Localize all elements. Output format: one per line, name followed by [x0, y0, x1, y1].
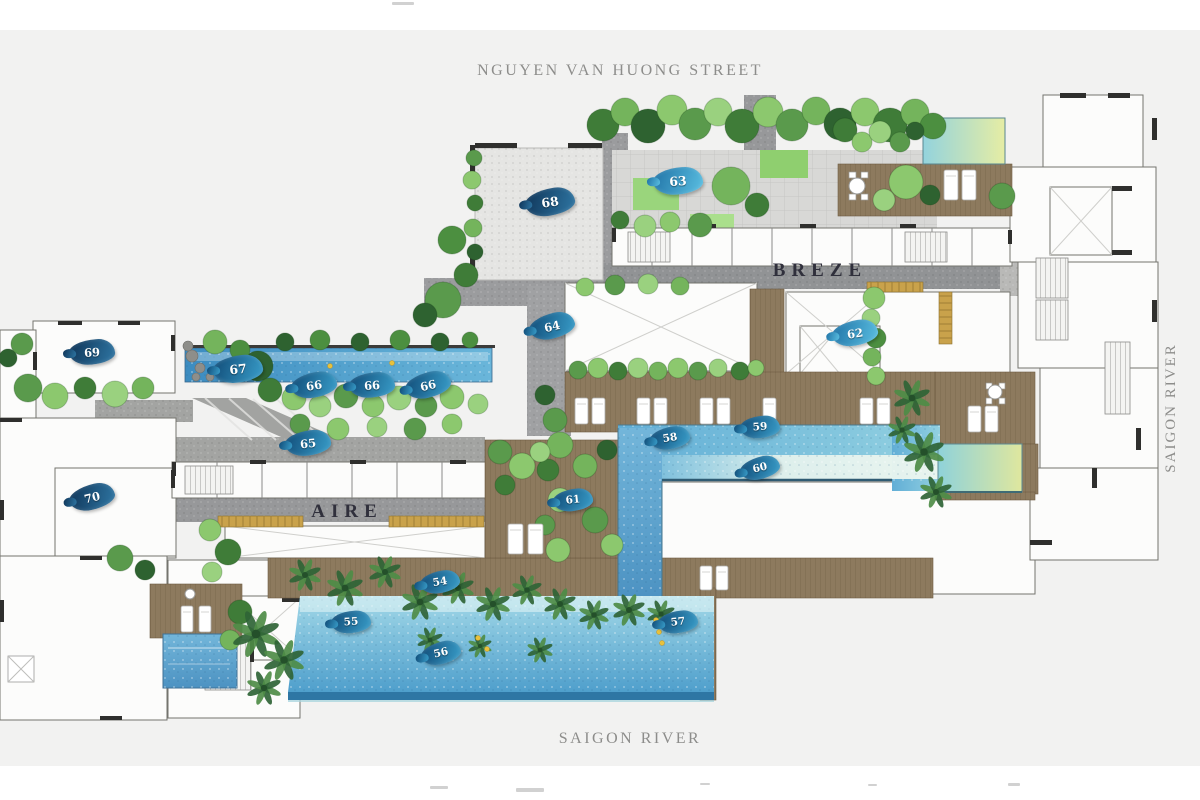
site-plan: NGUYEN VAN HUONG STREET BREZE AIRE SAIGO… — [0, 0, 1200, 800]
river-label-bottom: SAIGON RIVER — [470, 730, 790, 748]
tower-label-breze: BREZE — [750, 260, 890, 282]
river-label-right: SAIGON RIVER — [1163, 323, 1183, 493]
site-plan-artwork — [0, 0, 1200, 800]
tower-label-aire: AIRE — [282, 501, 412, 523]
street-label: NGUYEN VAN HUONG STREET — [320, 62, 920, 80]
